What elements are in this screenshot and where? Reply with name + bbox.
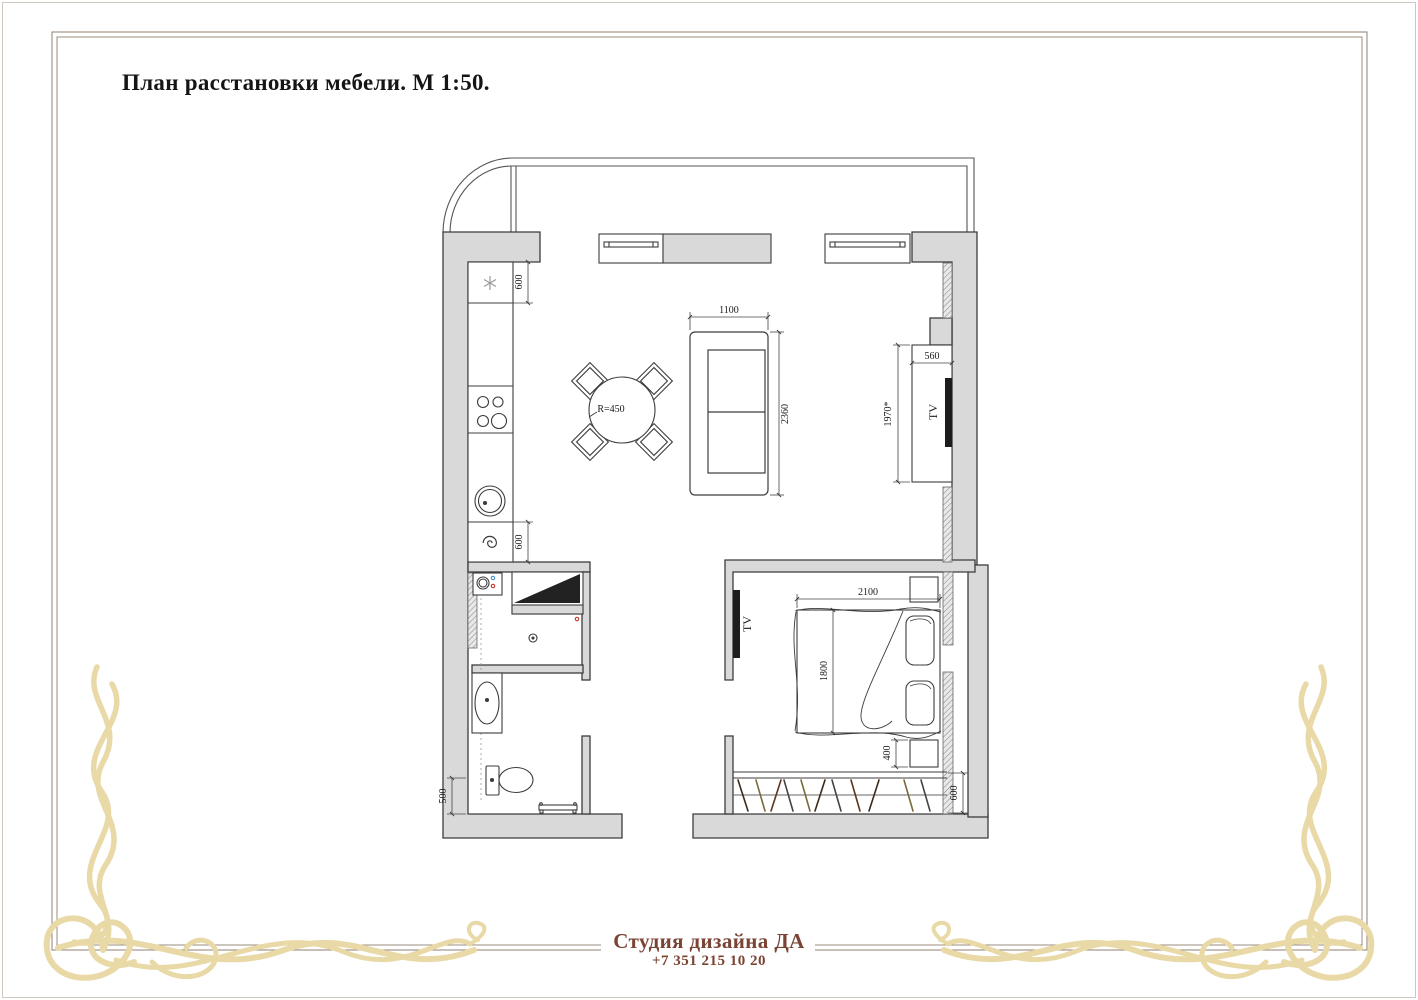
ornament-bottom-left (47, 667, 485, 978)
wardrobe (733, 772, 947, 811)
bed (794, 608, 941, 739)
page-frame (3, 3, 1416, 998)
dim-tv-unit-length: 1970* (883, 402, 894, 427)
cabinet-rail-left (599, 234, 663, 263)
washing-machine (473, 573, 502, 595)
kitchen-counter (468, 262, 513, 562)
cabinet-rail-right (825, 234, 910, 263)
tv-screen-bedroom (733, 590, 740, 658)
nightstand-bottom (910, 740, 938, 767)
dim-sofa-length: 2360 (780, 404, 791, 424)
page: 600 600 R=450 1100 2360 560 1970* TV TV … (0, 0, 1418, 1000)
toilet (486, 766, 533, 795)
wall-bathroom-right-lower (582, 736, 590, 814)
wall-bathroom-top (468, 562, 590, 572)
bathroom (472, 572, 583, 813)
dim-bed-width: 2100 (858, 587, 878, 598)
wall-pier-tv (930, 318, 952, 345)
wall-bedroom-left-lower (725, 736, 733, 814)
dim-sofa-width: 1100 (719, 305, 739, 316)
bathroom-sink (472, 673, 502, 733)
dim-wardrobe: 600 (949, 786, 960, 801)
dim-kitchen-fridge: 600 (514, 275, 525, 290)
dim-tv-unit-depth: 560 (925, 351, 940, 362)
cabinet-block (663, 234, 771, 263)
tv-screen (945, 378, 952, 447)
hall-bench (539, 803, 577, 813)
dim-nightstand: 400 (882, 746, 893, 761)
nightstand-top (910, 577, 938, 602)
dim-table-radius: R=450 (597, 404, 624, 415)
footer: Студия дизайна ДА +7 351 215 10 20 (559, 929, 859, 970)
sofa (690, 332, 768, 495)
tv-label-bedroom: TV (740, 616, 754, 632)
kitchen (468, 262, 513, 562)
studio-name: Студия дизайна ДА (559, 929, 859, 953)
window-glazing (443, 158, 974, 232)
dim-kitchen-counter: 600 (514, 535, 525, 550)
wall-right-lower (968, 565, 988, 817)
pillow (906, 616, 934, 665)
top-cabinets (599, 234, 910, 263)
dim-wc-clearance: 500 (438, 789, 449, 804)
wall-bottom-right (693, 814, 988, 838)
tv-label-living: TV (926, 404, 940, 420)
wall-bathroom-partition (472, 665, 583, 673)
shower (512, 572, 583, 642)
ornament-bottom-right (934, 667, 1372, 978)
studio-phone: +7 351 215 10 20 (559, 953, 859, 970)
drawing-canvas: 600 600 R=450 1100 2360 560 1970* TV TV … (0, 0, 1418, 1000)
page-title: План расстановки мебели. М 1:50. (122, 70, 490, 96)
bedroom (733, 577, 947, 811)
dim-bed-length: 1800 (819, 661, 830, 681)
floor-plan: 600 600 R=450 1100 2360 560 1970* TV TV … (438, 158, 988, 838)
